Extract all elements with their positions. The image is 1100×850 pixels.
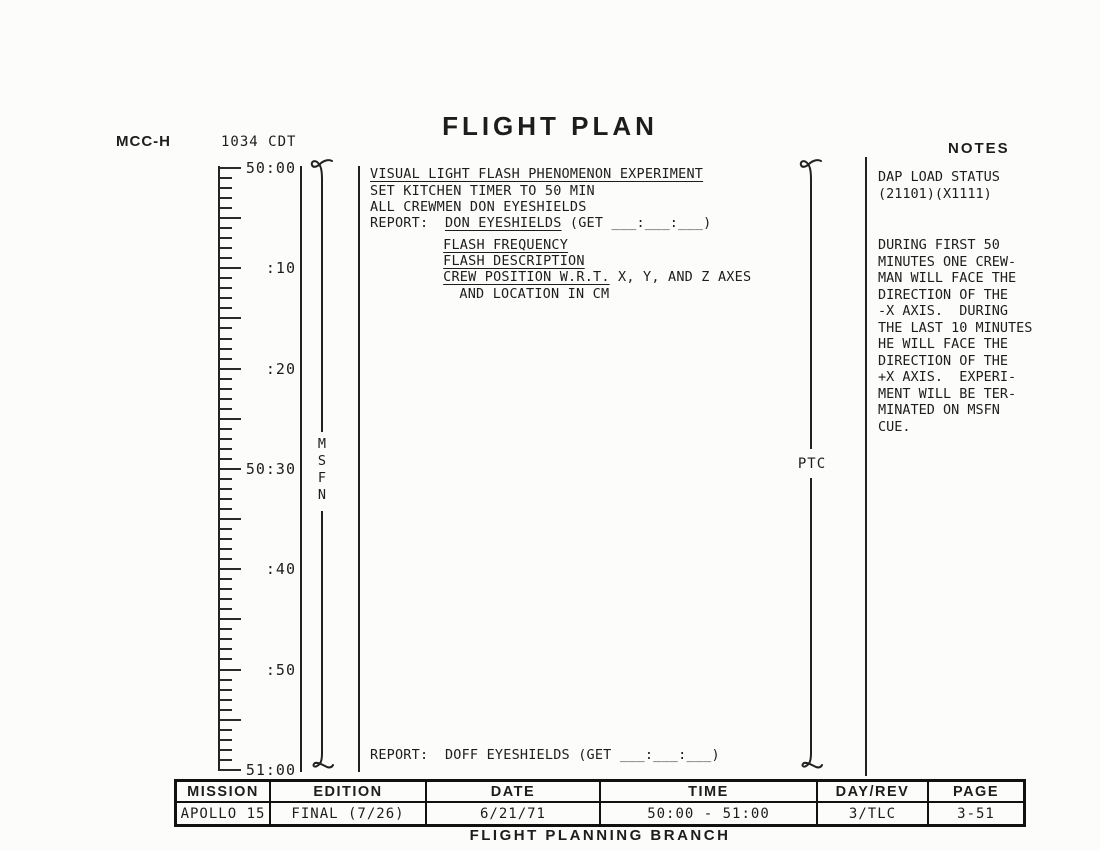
msfn-letter: S [312, 453, 332, 469]
tick-mark [219, 338, 232, 340]
msfn-bracket-lower-segment [321, 511, 323, 754]
tick-mark [219, 719, 241, 721]
tick-mark [219, 729, 232, 731]
tick-mark [219, 679, 232, 681]
tick-mark [219, 618, 241, 620]
tick-mark [219, 699, 232, 701]
notes-dap-status: DAP LOAD STATUS(21101)(X1111) [878, 169, 1093, 202]
note-line: MINATED ON MSFN [878, 402, 1093, 419]
activity-line: REPORT: DOFF EYESHIELDS (GET ___:___:___… [370, 747, 720, 763]
note-line: MENT WILL BE TER- [878, 386, 1093, 403]
activity-line: FLASH DESCRIPTION [370, 253, 585, 269]
flight-plan-page: { "header": { "station": "MCC-H", "local… [0, 0, 1100, 850]
time-label: 50:00 [216, 159, 296, 177]
tick-mark [219, 548, 232, 550]
tick-mark [219, 749, 232, 751]
tick-mark [219, 638, 232, 640]
mission-info-table: MISSIONEDITIONDATETIMEDAY/REVPAGEAPOLLO … [174, 779, 1026, 827]
column-divider-left [300, 166, 302, 772]
table-value-cell: 3/TLC [816, 803, 927, 824]
tick-mark [219, 739, 232, 741]
tick-mark [219, 237, 232, 239]
activity-line: SET KITCHEN TIMER TO 50 MIN [370, 183, 595, 199]
tick-mark [219, 327, 232, 329]
table-header-cell: EDITION [269, 782, 425, 803]
table-header-cell: DATE [425, 782, 599, 803]
table-header-cell: PAGE [927, 782, 1023, 803]
table-value-cell: FINAL (7/26) [269, 803, 425, 824]
tick-mark [219, 207, 232, 209]
tick-mark [219, 438, 232, 440]
note-line: (21101)(X1111) [878, 186, 1093, 203]
note-line: MAN WILL FACE THE [878, 270, 1093, 287]
msfn-bracket-upper-segment [321, 179, 323, 432]
tick-mark [219, 247, 232, 249]
note-line: DIRECTION OF THE [878, 287, 1093, 304]
tick-mark [219, 628, 232, 630]
table-value-cell: 6/21/71 [425, 803, 599, 824]
tick-mark [219, 709, 232, 711]
activity-line: CREW POSITION W.R.T. X, Y, AND Z AXES [370, 269, 751, 285]
tick-mark [219, 177, 232, 179]
note-line: -X AXIS. DURING [878, 303, 1093, 320]
tick-mark [219, 578, 232, 580]
time-label: 50:30 [216, 460, 296, 478]
tick-mark [219, 648, 232, 650]
tick-mark [219, 217, 241, 219]
ptc-bracket-top-curl-icon [797, 158, 825, 180]
notes-column-divider [865, 157, 867, 776]
note-line: DIRECTION OF THE [878, 353, 1093, 370]
msfn-bracket-top-curl-icon [308, 158, 336, 180]
tick-mark [219, 428, 232, 430]
note-line: HE WILL FACE THE [878, 336, 1093, 353]
page-title: FLIGHT PLAN [0, 111, 1100, 142]
note-line: MINUTES ONE CREW- [878, 254, 1093, 271]
msfn-bracket-bottom-curl-icon [308, 753, 336, 771]
note-line: DURING FIRST 50 [878, 237, 1093, 254]
table-value-cell: 3-51 [927, 803, 1023, 824]
tick-mark [219, 348, 232, 350]
msfn-letter: M [312, 436, 332, 452]
tick-mark [219, 488, 232, 490]
tick-mark [219, 528, 232, 530]
tick-mark [219, 297, 232, 299]
tick-mark [219, 498, 232, 500]
notes-column-heading: NOTES [948, 140, 1010, 157]
table-header-cell: MISSION [177, 782, 269, 803]
ptc-bracket-lower-segment [810, 478, 812, 754]
tick-mark [219, 197, 232, 199]
tick-mark [219, 398, 232, 400]
column-divider-right [358, 166, 360, 772]
tick-mark [219, 408, 232, 410]
tick-mark [219, 388, 232, 390]
tick-mark [219, 418, 241, 420]
activity-line: REPORT: DON EYESHIELDS (GET ___:___:___) [370, 215, 711, 231]
table-header-cell: TIME [599, 782, 816, 803]
tick-mark [219, 478, 232, 480]
activity-line: ALL CREWMEN DON EYESHIELDS [370, 199, 587, 215]
tick-mark [219, 588, 232, 590]
msfn-letter: F [312, 470, 332, 486]
activity-line: VISUAL LIGHT FLASH PHENOMENON EXPERIMENT [370, 166, 703, 182]
table-value-cell: 50:00 - 51:00 [599, 803, 816, 824]
activity-line: FLASH FREQUENCY [370, 237, 568, 253]
tick-mark [219, 317, 241, 319]
msfn-letter: N [312, 487, 332, 503]
tick-mark [219, 287, 232, 289]
tick-mark [219, 227, 232, 229]
tick-mark [219, 378, 232, 380]
tick-mark [219, 508, 232, 510]
tick-mark [219, 187, 232, 189]
note-line: CUE. [878, 419, 1093, 436]
tick-mark [219, 608, 232, 610]
time-label: 51:00 [216, 761, 296, 779]
time-label: :10 [216, 259, 296, 277]
ptc-bracket-upper-segment [810, 179, 812, 449]
time-label: :40 [216, 560, 296, 578]
table-value-cell: APOLLO 15 [177, 803, 269, 824]
notes-body-text: DURING FIRST 50MINUTES ONE CREW-MAN WILL… [878, 237, 1093, 435]
tick-mark [219, 448, 232, 450]
time-label: :50 [216, 661, 296, 679]
tick-mark [219, 518, 241, 520]
tick-mark [219, 689, 232, 691]
tick-mark [219, 538, 232, 540]
branch-footer: FLIGHT PLANNING BRANCH [175, 827, 1025, 844]
table-header-cell: DAY/REV [816, 782, 927, 803]
note-line: DAP LOAD STATUS [878, 169, 1093, 186]
note-line: THE LAST 10 MINUTES [878, 320, 1093, 337]
ptc-label: PTC [791, 456, 833, 472]
tick-mark [219, 277, 232, 279]
tick-mark [219, 598, 232, 600]
note-line: +X AXIS. EXPERI- [878, 369, 1093, 386]
ptc-bracket-bottom-curl-icon [797, 753, 825, 771]
tick-mark [219, 307, 232, 309]
activity-line: AND LOCATION IN CM [370, 286, 609, 302]
time-label: :20 [216, 360, 296, 378]
